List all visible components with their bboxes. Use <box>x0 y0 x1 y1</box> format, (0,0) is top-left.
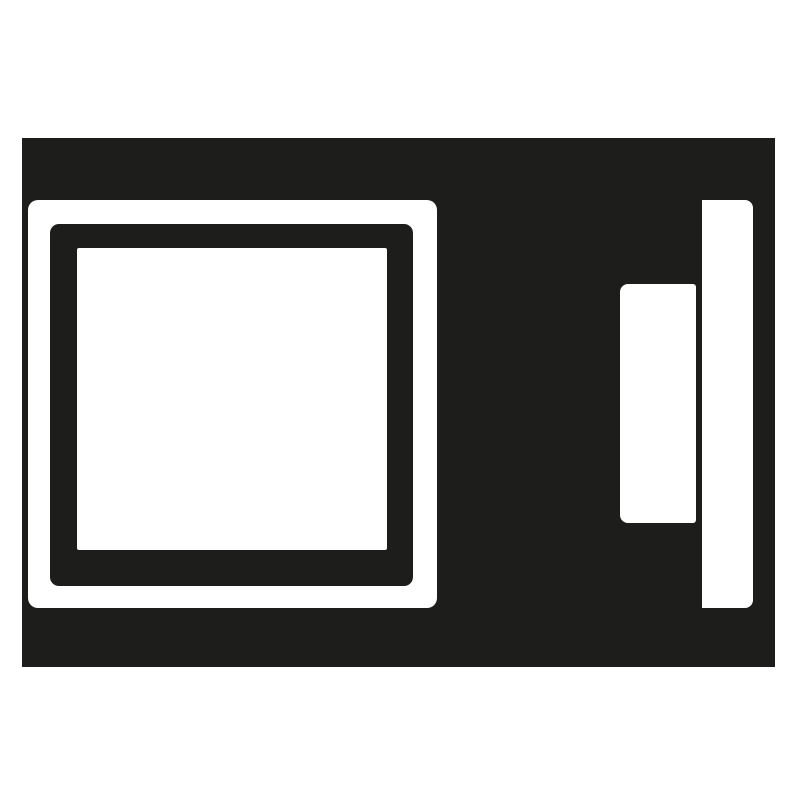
appliance-body-shape <box>22 138 775 667</box>
control-panel-shape <box>620 284 696 523</box>
door-window-shape <box>77 248 387 550</box>
handle-bar-shape <box>702 200 753 608</box>
icon-canvas <box>0 0 800 800</box>
